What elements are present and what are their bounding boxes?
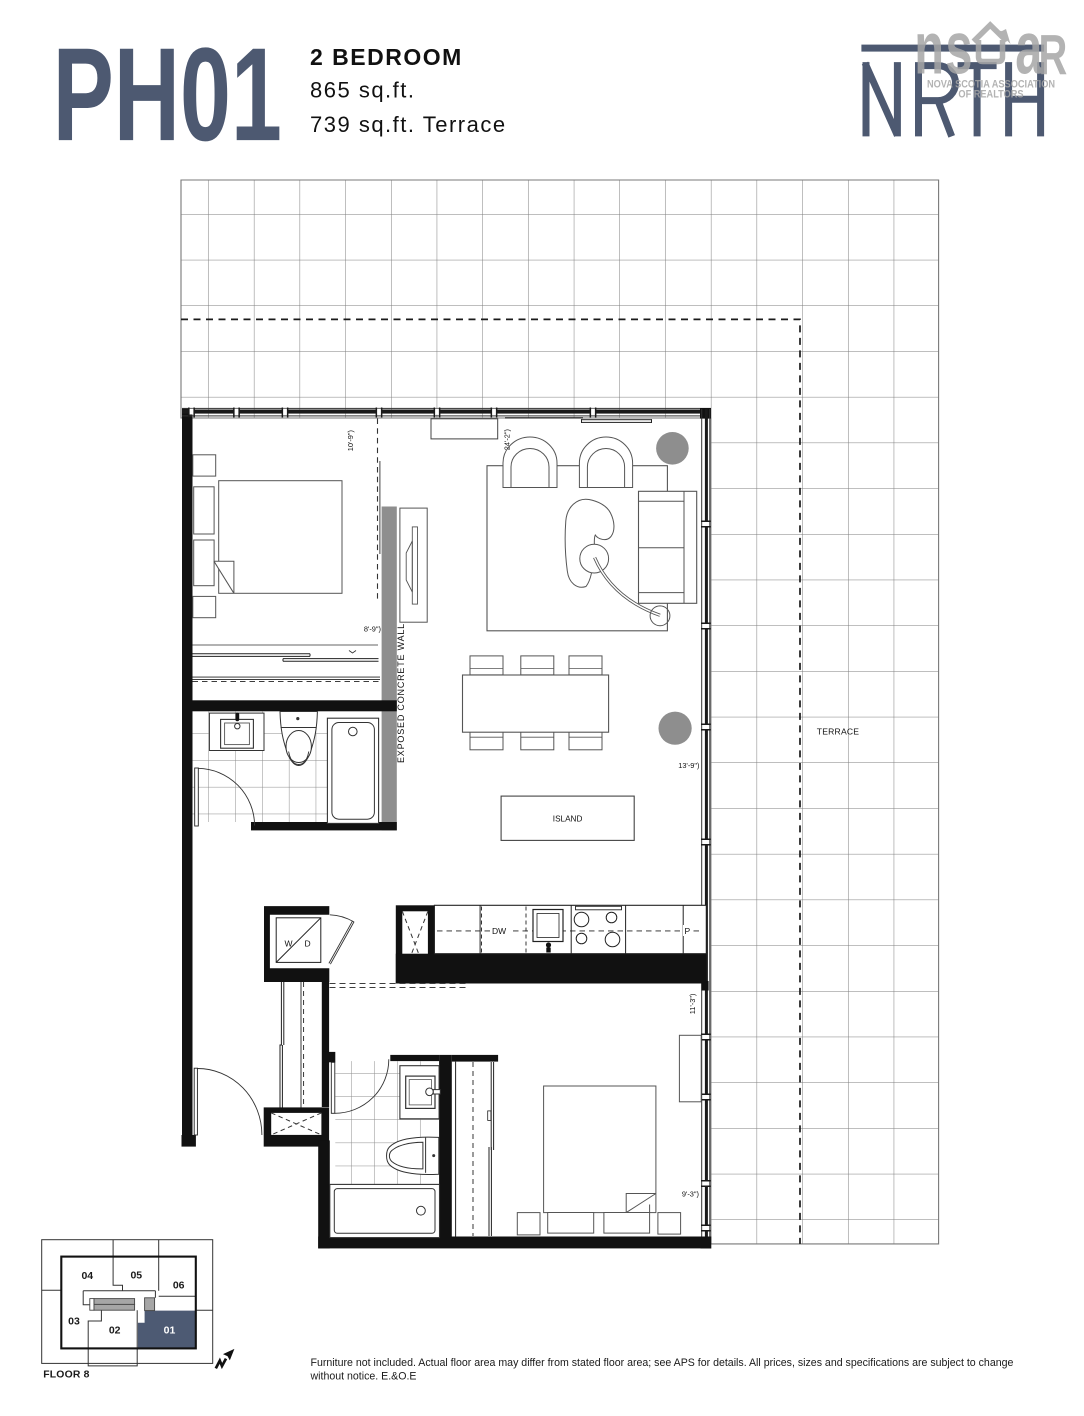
svg-text:2 BEDROOM: 2 BEDROOM — [310, 44, 463, 70]
svg-text:01: 01 — [164, 1325, 176, 1337]
svg-text:04: 04 — [81, 1270, 93, 1282]
svg-text:03: 03 — [68, 1316, 80, 1328]
svg-text:ISLAND: ISLAND — [553, 815, 583, 824]
svg-text:9'-3"): 9'-3") — [682, 1190, 699, 1199]
svg-text:865 sq.ft.: 865 sq.ft. — [310, 78, 416, 103]
svg-text:ns: ns — [914, 7, 974, 90]
svg-text:DW: DW — [492, 926, 506, 936]
svg-text:739 sq.ft. Terrace: 739 sq.ft. Terrace — [310, 112, 507, 137]
svg-text:without notice. E.&O.E: without notice. E.&O.E — [310, 1370, 417, 1382]
svg-text:05: 05 — [130, 1270, 142, 1282]
svg-text:OF REALTORS: OF REALTORS — [958, 89, 1024, 101]
svg-text:8'-9"): 8'-9") — [364, 625, 381, 634]
svg-text:Furniture not included. Actual: Furniture not included. Actual floor are… — [311, 1357, 1014, 1369]
svg-text:06: 06 — [173, 1280, 185, 1292]
svg-text:24'-2"): 24'-2") — [503, 429, 512, 450]
svg-text:02: 02 — [109, 1325, 121, 1337]
svg-text:PH01: PH01 — [53, 21, 282, 169]
svg-text:P: P — [685, 926, 691, 936]
svg-text:D: D — [305, 939, 311, 949]
svg-text:W: W — [285, 939, 293, 949]
svg-text:FLOOR 8: FLOOR 8 — [43, 1370, 89, 1381]
svg-text:TERRACE: TERRACE — [817, 727, 860, 737]
svg-text:13'-9"): 13'-9") — [678, 761, 699, 770]
svg-text:EXPOSED CONCRETE WALL: EXPOSED CONCRETE WALL — [396, 623, 406, 763]
svg-text:R: R — [1039, 23, 1068, 87]
svg-text:10'-9"): 10'-9") — [346, 430, 355, 451]
svg-text:11'-3"): 11'-3") — [688, 994, 697, 1015]
